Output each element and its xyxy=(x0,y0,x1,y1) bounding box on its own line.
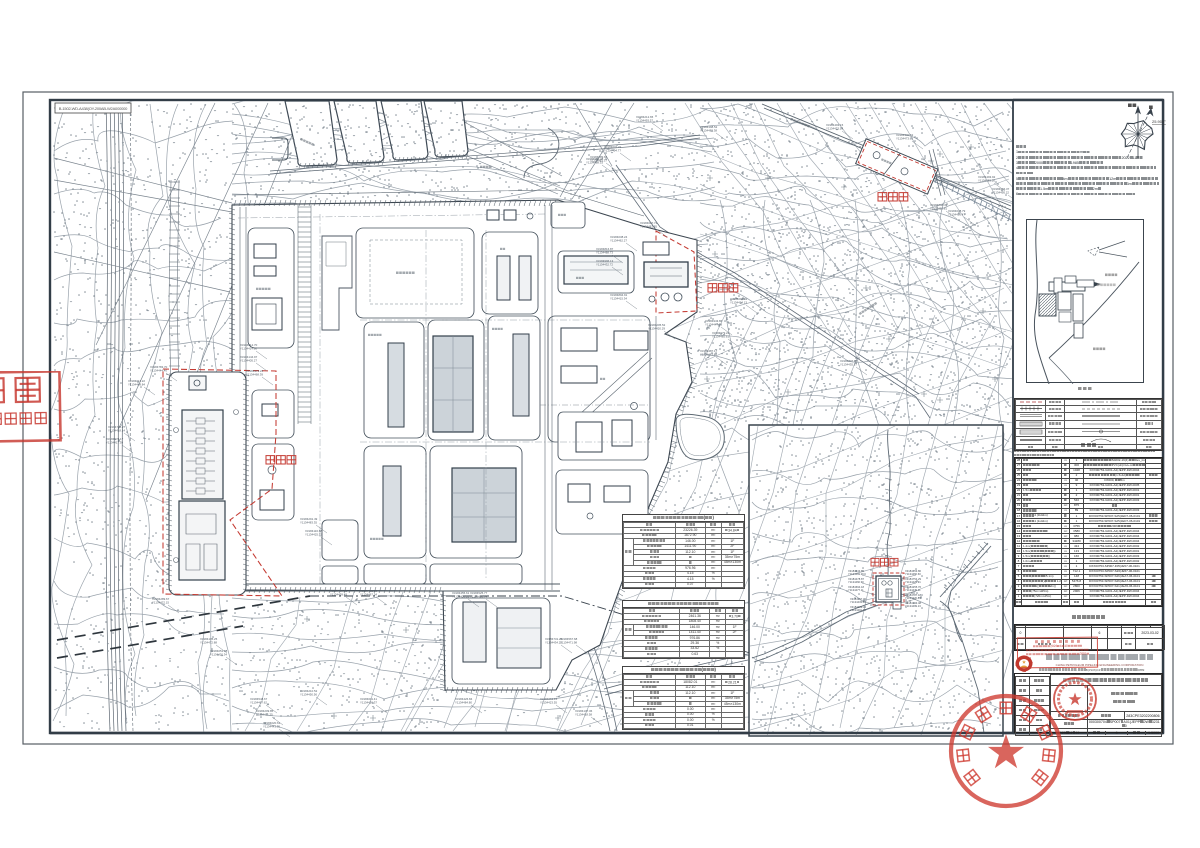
svg-text:Y1134483.50: Y1134483.50 xyxy=(978,179,995,183)
svg-text:Y1134422.15: Y1134422.15 xyxy=(152,601,169,605)
svg-text:Y1134417.39: Y1134417.39 xyxy=(106,441,123,445)
svg-text:Y1134443.35: Y1134443.35 xyxy=(263,725,280,729)
svg-text:Y1134426.37: Y1134426.37 xyxy=(360,701,377,705)
svg-text:Y1134405.27: Y1134405.27 xyxy=(240,359,257,363)
svg-text:Y1134486.47: Y1134486.47 xyxy=(948,213,965,217)
svg-text:Y1134460.90: Y1134460.90 xyxy=(848,580,864,584)
svg-text:Y1134425.52: Y1134425.52 xyxy=(305,533,322,537)
svg-text:Y1134488.73: Y1134488.73 xyxy=(596,251,613,255)
svg-text:Y1134485.61: Y1134485.61 xyxy=(712,335,729,339)
svg-text:Y1134488.33: Y1134488.33 xyxy=(586,161,603,165)
svg-text:Y1134481.85: Y1134481.85 xyxy=(640,225,657,229)
svg-text:Y1134463.88: Y1134463.88 xyxy=(700,353,717,357)
svg-text:Y1134432.72: Y1134432.72 xyxy=(596,263,613,267)
svg-text:25.908°: 25.908° xyxy=(1152,119,1166,124)
svg-text:Y1134490.74: Y1134490.74 xyxy=(470,595,487,599)
svg-text:B-1502-WD-A438(OY-200AB-W2A000: B-1502-WD-A438(OY-200AB-W2A000000 xyxy=(59,106,128,111)
svg-text:Y1134473.60: Y1134473.60 xyxy=(896,137,913,141)
svg-text:Y1134411.25: Y1134411.25 xyxy=(256,713,273,717)
svg-text:Y1134424.13: Y1134424.13 xyxy=(730,301,747,305)
svg-text:Y1134450.56: Y1134450.56 xyxy=(300,693,317,697)
svg-text:Y1134467.34: Y1134467.34 xyxy=(360,593,377,597)
svg-text:Y1134459.49: Y1134459.49 xyxy=(330,593,347,597)
svg-text:Y1134477.11: Y1134477.11 xyxy=(848,588,864,592)
svg-text:Y1134406.81: Y1134406.81 xyxy=(452,595,469,599)
svg-text:Y1134467.62: Y1134467.62 xyxy=(250,701,267,705)
svg-text:Y1134444.40: Y1134444.40 xyxy=(150,369,167,373)
svg-text:Y1134435.57: Y1134435.57 xyxy=(840,363,857,367)
svg-text:Y1134472.88: Y1134472.88 xyxy=(200,641,217,645)
svg-text:Y1134499.13: Y1134499.13 xyxy=(905,604,921,608)
svg-text:Y1134462.27: Y1134462.27 xyxy=(610,239,627,243)
svg-text:Y1134468.39: Y1134468.39 xyxy=(246,373,263,377)
svg-text:Y1134433.80: Y1134433.80 xyxy=(850,600,866,604)
svg-text:Y1134422.81: Y1134422.81 xyxy=(930,207,947,211)
svg-text:Y1134418.58: Y1134418.58 xyxy=(575,713,592,717)
svg-text:Y1134433.53: Y1134433.53 xyxy=(826,127,843,131)
svg-text:Y1134482.38: Y1134482.38 xyxy=(700,129,717,133)
svg-text:Y1134415.34: Y1134415.34 xyxy=(610,297,627,301)
svg-text:Y1134484.80: Y1134484.80 xyxy=(455,701,472,705)
svg-text:Y1134448.84: Y1134448.84 xyxy=(128,383,145,387)
svg-text:Y1134418.14: Y1134418.14 xyxy=(108,429,125,433)
svg-text:Y1134423.55: Y1134423.55 xyxy=(540,701,557,705)
svg-text:Y1134426.34: Y1134426.34 xyxy=(210,653,227,657)
svg-text:Y1134414.60: Y1134414.60 xyxy=(240,347,257,351)
svg-text:Y1134495.22: Y1134495.22 xyxy=(992,191,1009,195)
svg-text:Y1134483.35: Y1134483.35 xyxy=(300,521,317,525)
svg-text:Y1134469.26: Y1134469.26 xyxy=(848,572,864,576)
svg-text:Y1134491.70: Y1134491.70 xyxy=(850,608,866,612)
svg-text:Y1134471.98: Y1134471.98 xyxy=(560,641,577,645)
svg-text:Y1134447.99: Y1134447.99 xyxy=(705,323,722,327)
svg-text:Y1134420.29: Y1134420.29 xyxy=(648,327,665,331)
svg-text:Y1134494.77: Y1134494.77 xyxy=(604,149,621,153)
svg-text:Y1134493.57: Y1134493.57 xyxy=(636,119,653,123)
